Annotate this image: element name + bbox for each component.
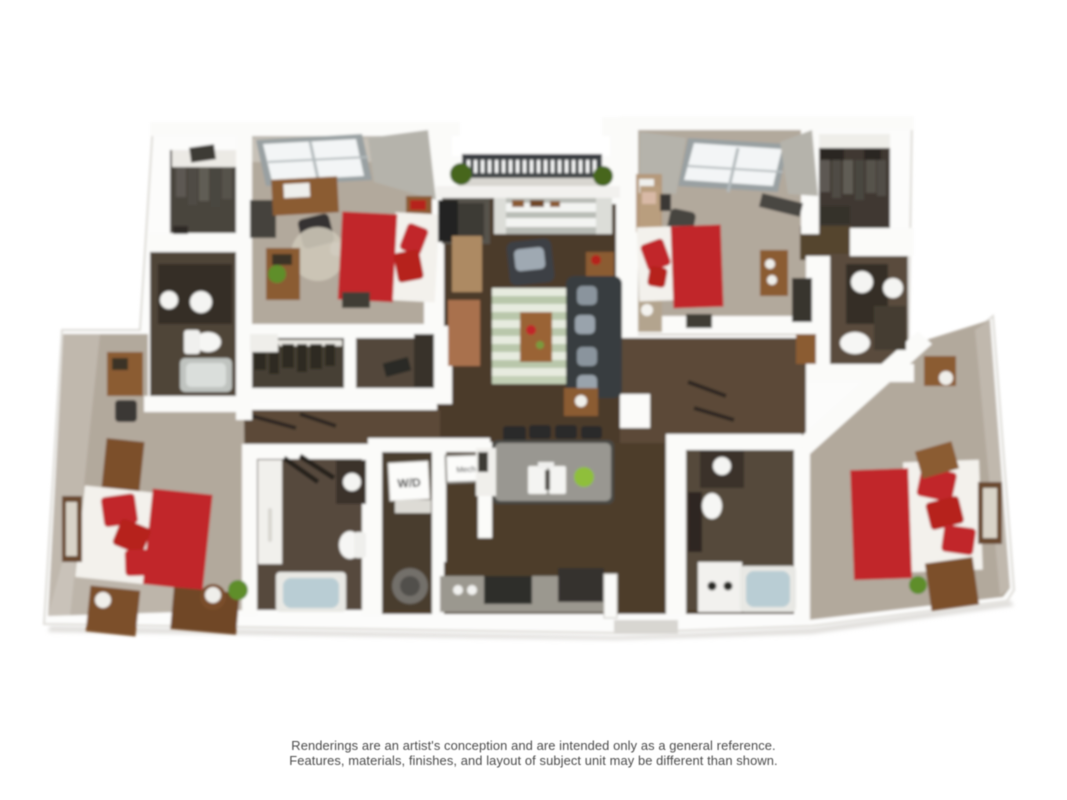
svg-text:W/D: W/D [397,475,421,490]
svg-text:Mech: Mech [456,465,476,475]
